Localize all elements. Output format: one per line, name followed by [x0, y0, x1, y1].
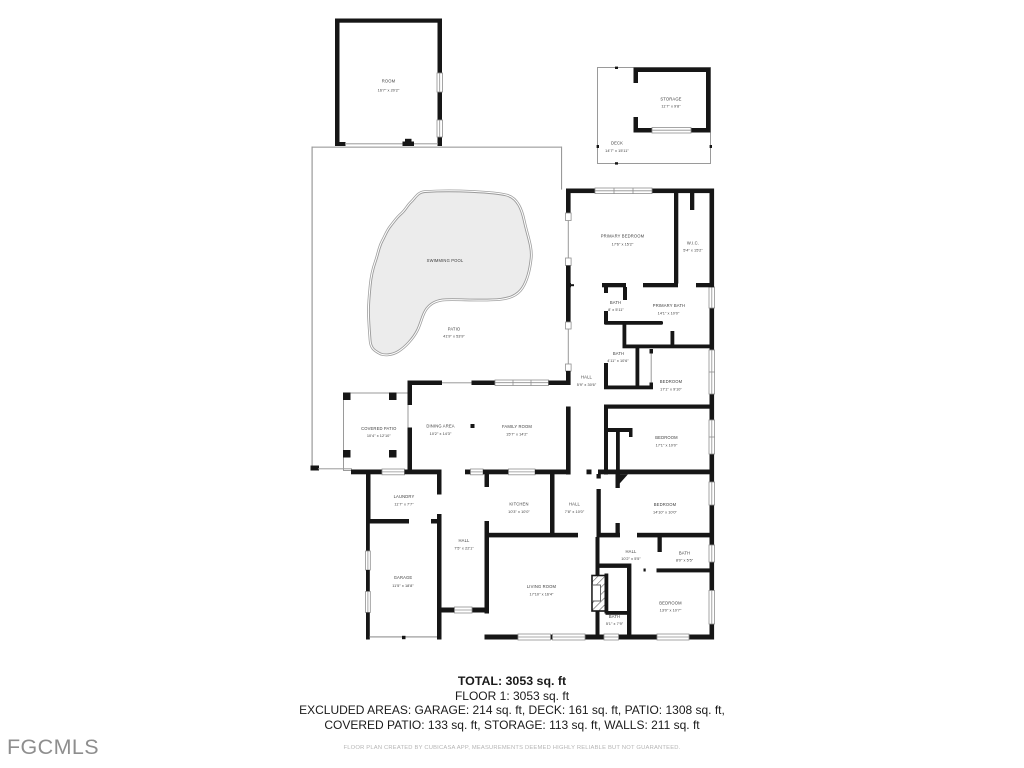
svg-text:HALL: HALL: [581, 375, 593, 380]
svg-text:COVERED PATIO: COVERED PATIO: [361, 426, 397, 431]
svg-text:FAMILY ROOM: FAMILY ROOM: [502, 424, 532, 429]
svg-text:BEDROOM: BEDROOM: [654, 502, 677, 507]
svg-text:SWIMMING POOL: SWIMMING POOL: [427, 258, 464, 263]
svg-text:14'1" x 10'0": 14'1" x 10'0": [658, 312, 680, 316]
svg-text:11'7" x 9'8": 11'7" x 9'8": [661, 105, 681, 109]
svg-text:14'7" x 15'11": 14'7" x 15'11": [605, 149, 629, 153]
svg-text:W.I.C.: W.I.C.: [687, 241, 699, 246]
svg-text:13'0" x 10'7": 13'0" x 10'7": [660, 609, 682, 613]
svg-text:4'11" x 10'6": 4'11" x 10'6": [607, 359, 629, 363]
svg-text:GARAGE: GARAGE: [394, 575, 413, 580]
svg-text:11'5" x 18'8": 11'5" x 18'8": [392, 584, 414, 588]
svg-text:BEDROOM: BEDROOM: [659, 601, 682, 606]
svg-text:17'10" x 16'4": 17'10" x 16'4": [530, 593, 555, 597]
svg-text:HALL: HALL: [569, 502, 581, 507]
svg-text:BATH: BATH: [610, 300, 621, 305]
svg-text:17'1" x 9'10": 17'1" x 9'10": [660, 388, 682, 392]
svg-text:LAUNDRY: LAUNDRY: [394, 494, 415, 499]
svg-text:HALL: HALL: [459, 538, 471, 543]
svg-text:17'1" x 10'0": 17'1" x 10'0": [656, 444, 678, 448]
svg-text:10'3" x 10'0": 10'3" x 10'0": [508, 510, 530, 514]
svg-text:BEDROOM: BEDROOM: [655, 435, 678, 440]
svg-text:41'9" x 53'9": 41'9" x 53'9": [443, 335, 465, 339]
svg-text:10'4" x 12'10": 10'4" x 12'10": [367, 434, 392, 438]
svg-text:15'7" x 14'2": 15'7" x 14'2": [506, 433, 528, 437]
svg-text:5'4" x 15'2": 5'4" x 15'2": [683, 249, 703, 253]
svg-text:10'2" x 5'5": 10'2" x 5'5": [621, 557, 641, 561]
svg-text:DECK: DECK: [611, 141, 623, 146]
svg-text:7'8" x 10'0": 7'8" x 10'0": [565, 510, 585, 514]
svg-text:16'7" x 20'2": 16'7" x 20'2": [378, 89, 400, 93]
svg-text:PATIO: PATIO: [448, 327, 461, 332]
svg-text:BATH: BATH: [609, 614, 620, 619]
svg-text:PRIMARY BEDROOM: PRIMARY BEDROOM: [601, 234, 645, 239]
svg-text:BEDROOM: BEDROOM: [660, 379, 683, 384]
svg-text:10'2" x 14'3": 10'2" x 14'3": [430, 432, 452, 436]
svg-text:PRIMARY BATH: PRIMARY BATH: [653, 303, 685, 308]
svg-text:8' x 5'11": 8' x 5'11": [608, 308, 624, 312]
svg-text:17'6" x 15'2": 17'6" x 15'2": [612, 243, 634, 247]
svg-text:5'9" x 30'6": 5'9" x 30'6": [577, 383, 597, 387]
svg-text:11'7" x 7'7": 11'7" x 7'7": [394, 503, 414, 507]
svg-text:14'10" x 10'0": 14'10" x 10'0": [653, 511, 678, 515]
svg-text:LIVING ROOM: LIVING ROOM: [527, 584, 557, 589]
svg-text:8'0" x 5'5": 8'0" x 5'5": [676, 559, 694, 563]
svg-text:BATH: BATH: [613, 351, 624, 356]
svg-text:STORAGE: STORAGE: [660, 97, 681, 102]
svg-text:KITCHEN: KITCHEN: [509, 502, 528, 507]
svg-text:DINING AREA: DINING AREA: [426, 424, 454, 429]
svg-text:HALL: HALL: [626, 549, 638, 554]
svg-text:ROOM: ROOM: [382, 79, 396, 84]
svg-text:BATH: BATH: [679, 551, 690, 556]
svg-text:7'5" x 22'1": 7'5" x 22'1": [454, 547, 474, 551]
svg-text:5'1" x 7'9": 5'1" x 7'9": [606, 622, 624, 626]
